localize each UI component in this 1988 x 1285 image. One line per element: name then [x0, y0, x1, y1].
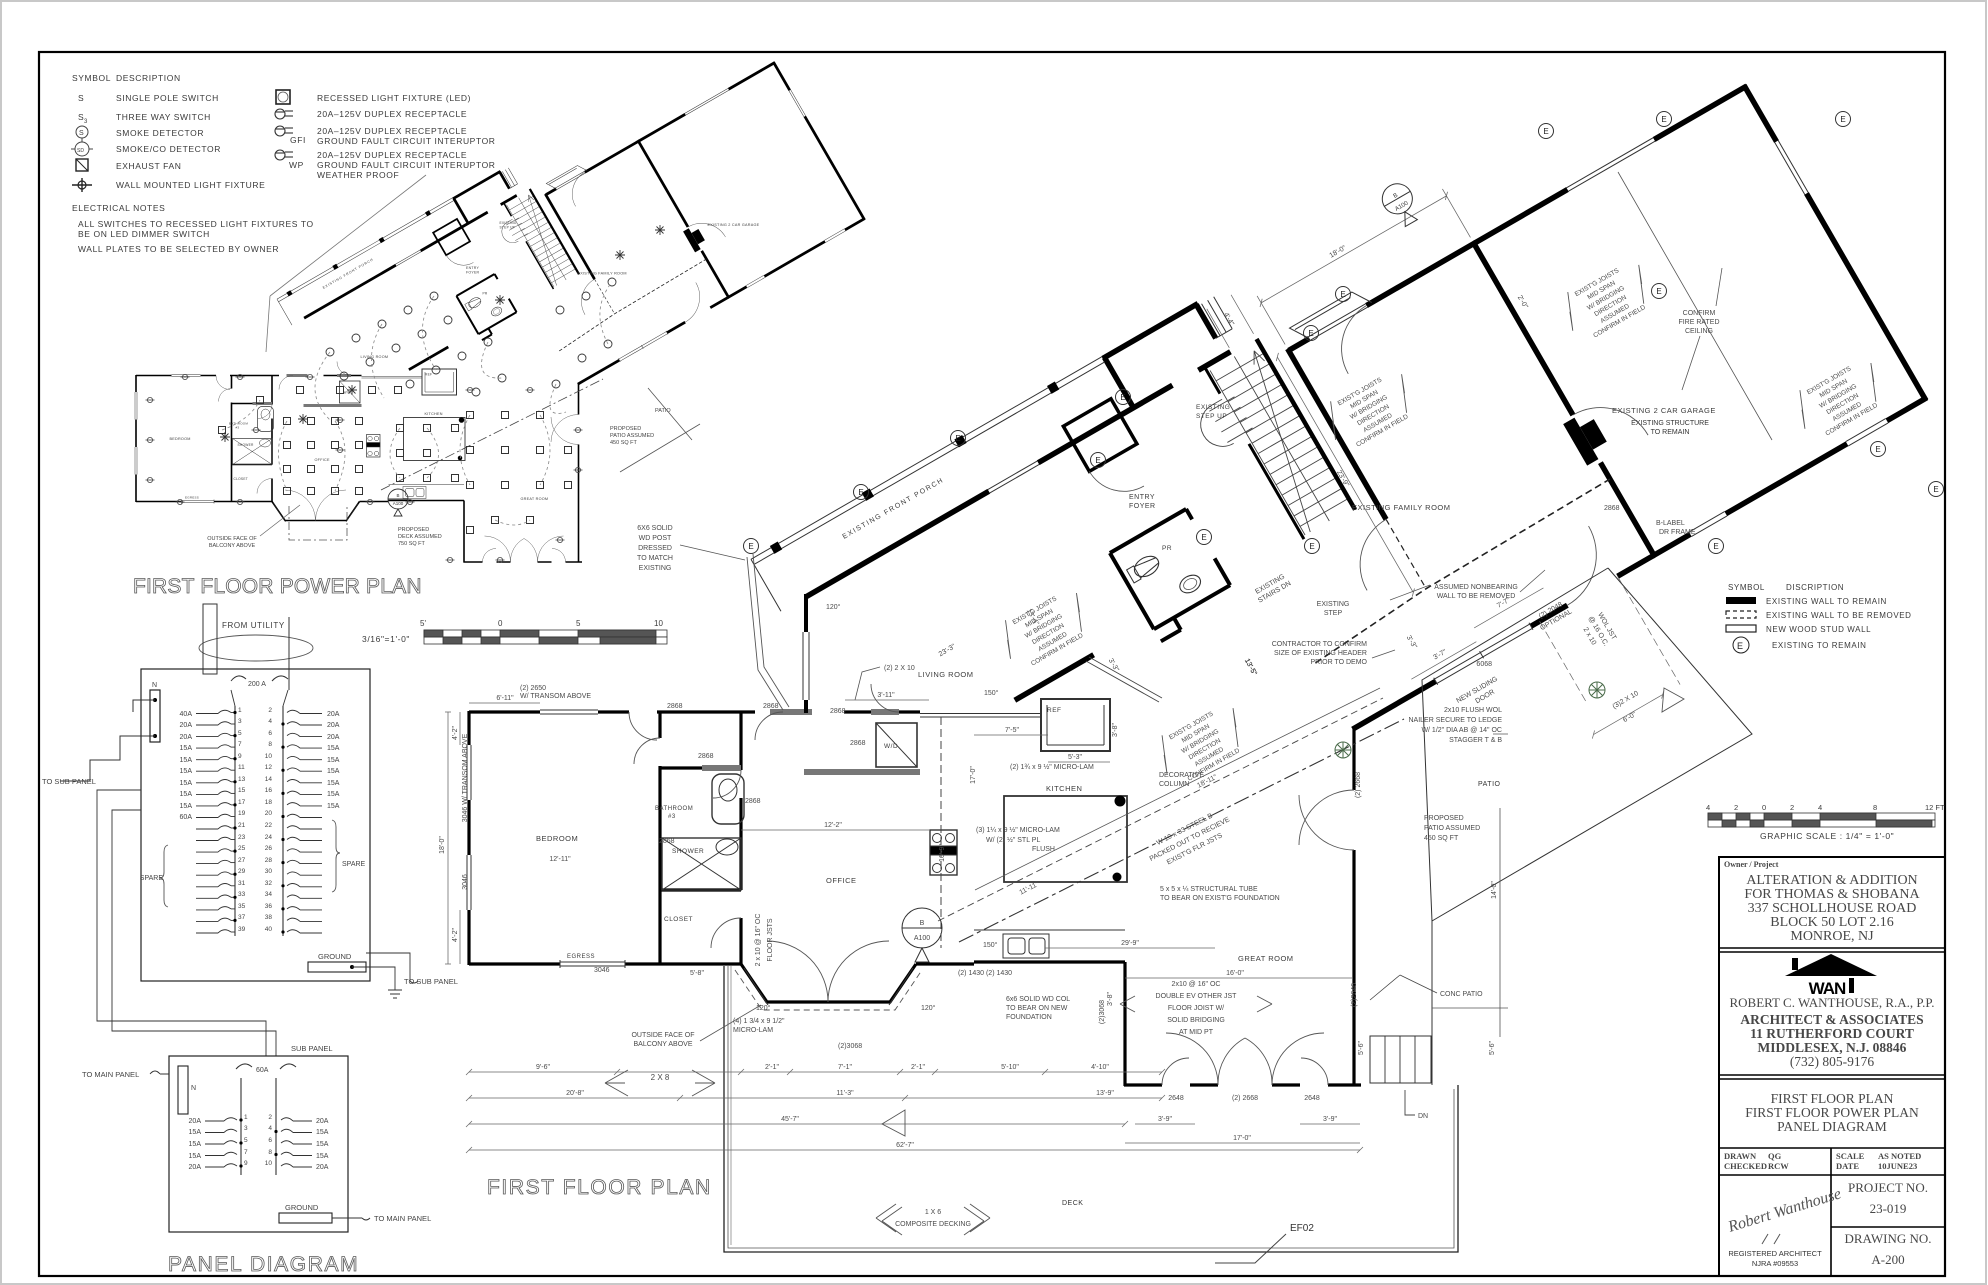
svg-text:E: E: [955, 434, 960, 443]
svg-text:GROUND: GROUND: [318, 952, 352, 961]
svg-text:39: 39: [238, 926, 246, 933]
svg-text:FLUSH: FLUSH: [1032, 846, 1055, 853]
svg-text:3046: 3046: [594, 967, 610, 974]
svg-text:3'-9": 3'-9": [1323, 1116, 1337, 1123]
svg-text:TO MAIN PANEL: TO MAIN PANEL: [374, 1214, 431, 1223]
svg-text:W/ 1/2" DIA AB @ 14" OC: W/ 1/2" DIA AB @ 14" OC: [1421, 727, 1502, 734]
svg-text:TO BEAR ON EXIST'G FOUNDATION: TO BEAR ON EXIST'G FOUNDATION: [1160, 895, 1280, 902]
svg-text:E: E: [858, 488, 863, 497]
svg-text:DR FRAME: DR FRAME: [1659, 529, 1696, 536]
svg-text:5'-8": 5'-8": [690, 970, 704, 977]
svg-text:TO SUB PANEL: TO SUB PANEL: [404, 977, 458, 986]
svg-text:7: 7: [238, 741, 242, 748]
svg-text:21: 21: [238, 822, 246, 829]
svg-text:7'-1": 7'-1": [838, 1064, 852, 1071]
svg-text:WD POST: WD POST: [639, 535, 672, 542]
svg-text:15A: 15A: [316, 1153, 329, 1160]
svg-text:20A: 20A: [316, 1164, 329, 1171]
svg-text:TO SUB PANEL: TO SUB PANEL: [42, 777, 96, 786]
svg-text:SINGLE POLE SWITCH: SINGLE POLE SWITCH: [116, 93, 219, 103]
svg-text:SUB PANEL: SUB PANEL: [291, 1044, 333, 1053]
svg-text:15A: 15A: [327, 757, 340, 764]
svg-text:2648: 2648: [1304, 1095, 1320, 1102]
svg-text:MONROE, NJ: MONROE, NJ: [1790, 929, 1874, 944]
svg-text:MIDDLESEX, N.J. 08846: MIDDLESEX, N.J. 08846: [1758, 1040, 1907, 1055]
svg-text:3'-8": 3'-8": [1107, 992, 1114, 1006]
svg-text:EXISTING TO REMAIN: EXISTING TO REMAIN: [1772, 641, 1867, 650]
svg-text:E: E: [1840, 115, 1845, 124]
svg-text:WALL PLATES TO BE SELECTED BY: WALL PLATES TO BE SELECTED BY OWNER: [78, 244, 279, 254]
svg-text:EXHAUST FAN: EXHAUST FAN: [116, 161, 182, 171]
svg-text:(2) 2650: (2) 2650: [520, 685, 546, 692]
svg-text:BLOCK 50 LOT 2.16: BLOCK 50 LOT 2.16: [1770, 915, 1893, 930]
svg-text:B-LABEL: B-LABEL: [1656, 520, 1685, 527]
svg-text:S: S: [79, 130, 84, 137]
svg-text:17'-0": 17'-0": [1233, 1135, 1251, 1142]
svg-text:B: B: [920, 920, 925, 927]
svg-text:12 FT: 12 FT: [1925, 803, 1945, 812]
svg-text:2: 2: [268, 1114, 272, 1121]
svg-text:TO MATCH: TO MATCH: [637, 555, 673, 562]
svg-text:20A–125V DUPLEX RECEPTACLE: 20A–125V DUPLEX RECEPTACLE: [317, 150, 467, 160]
svg-text:10: 10: [654, 619, 663, 628]
svg-text:SD: SD: [77, 148, 84, 154]
svg-text:24: 24: [265, 834, 273, 841]
svg-text:TO MAIN PANEL: TO MAIN PANEL: [82, 1070, 139, 1079]
svg-text:26: 26: [265, 845, 273, 852]
svg-text:DATE: DATE: [1836, 1161, 1859, 1171]
svg-text:DOUBLE EV OTHER JST: DOUBLE EV OTHER JST: [1156, 993, 1238, 1000]
svg-text:ELECTRICAL NOTES: ELECTRICAL NOTES: [72, 203, 165, 213]
svg-text:NAILER SECURE TO LEDGE: NAILER SECURE TO LEDGE: [1409, 717, 1503, 724]
svg-text:0: 0: [498, 619, 503, 628]
svg-text:CONC PATIO: CONC PATIO: [1440, 991, 1483, 998]
svg-text:0: 0: [1762, 803, 1766, 812]
svg-text:5'-6": 5'-6": [1489, 1041, 1496, 1055]
svg-text:E: E: [1656, 287, 1661, 296]
svg-text:(2) 2668: (2) 2668: [1355, 772, 1362, 798]
svg-text:PANEL DIAGRAM: PANEL DIAGRAM: [168, 1253, 359, 1276]
svg-text:3046: 3046: [462, 874, 469, 890]
svg-text:12: 12: [265, 764, 273, 771]
svg-text:REGISTERED ARCHITECT: REGISTERED ARCHITECT: [1728, 1249, 1822, 1258]
svg-text:CONTRACTOR TO CONFIRM: CONTRACTOR TO CONFIRM: [1272, 641, 1367, 648]
svg-text:15A: 15A: [180, 780, 193, 787]
svg-text:15A: 15A: [180, 768, 193, 775]
svg-text:DRAWING NO.: DRAWING NO.: [1844, 1231, 1931, 1246]
svg-text:5: 5: [238, 730, 242, 737]
svg-text:E: E: [1713, 542, 1718, 551]
svg-text:15A: 15A: [180, 791, 193, 798]
svg-text:6X6 SOLID: 6X6 SOLID: [637, 525, 672, 532]
svg-text:TO BEAR ON NEW: TO BEAR ON NEW: [1006, 1005, 1068, 1012]
svg-text:20A: 20A: [189, 1164, 202, 1171]
svg-text:(732) 805-9176: (732) 805-9176: [1790, 1054, 1875, 1069]
svg-text:EXISTING: EXISTING: [1317, 601, 1350, 608]
svg-text:WALL MOUNTED LIGHT FIXTURE: WALL MOUNTED LIGHT FIXTURE: [116, 180, 265, 190]
svg-text:15: 15: [238, 787, 246, 794]
svg-text:3'-8": 3'-8": [1112, 723, 1119, 737]
svg-text:FIRST FLOOR POWER PLAN: FIRST FLOOR POWER PLAN: [1745, 1105, 1919, 1120]
svg-text:17: 17: [238, 799, 246, 806]
svg-text:PANEL DIAGRAM: PANEL DIAGRAM: [1777, 1119, 1887, 1134]
svg-text:ROBERT C. WANTHOUSE, R.A., P.P: ROBERT C. WANTHOUSE, R.A., P.P.: [1730, 995, 1935, 1010]
svg-text:SIZE OF EXISTING HEADER: SIZE OF EXISTING HEADER: [1274, 650, 1367, 657]
svg-text:NJRA #09553: NJRA #09553: [1752, 1259, 1798, 1268]
svg-text:9'-6": 9'-6": [536, 1064, 550, 1071]
svg-text:15A: 15A: [180, 803, 193, 810]
svg-text:E: E: [1661, 115, 1666, 124]
svg-text:2868: 2868: [698, 753, 714, 760]
svg-text:6'-11": 6'-11": [496, 695, 514, 702]
svg-text:20A: 20A: [180, 734, 193, 741]
svg-text:120°: 120°: [826, 603, 841, 611]
svg-text:SYMBOL: SYMBOL: [1728, 583, 1765, 592]
svg-text:PROPOSED: PROPOSED: [610, 426, 641, 432]
svg-text:QG: QG: [1768, 1151, 1782, 1161]
svg-text:3/16"=1'-0": 3/16"=1'-0": [362, 634, 410, 644]
svg-text:W/ TRANSOM ABOVE: W/ TRANSOM ABOVE: [520, 693, 591, 700]
svg-text:PROPOSED: PROPOSED: [1424, 815, 1464, 822]
svg-text:A100: A100: [914, 935, 930, 942]
svg-text:5 x 5 x ¼ STRUCTURAL TUBE: 5 x 5 x ¼ STRUCTURAL TUBE: [1160, 886, 1258, 893]
svg-text:2868: 2868: [850, 740, 866, 747]
svg-text:37: 37: [238, 914, 246, 921]
svg-text:FLOOR JSTS: FLOOR JSTS: [767, 918, 774, 962]
svg-text:NEW WOOD STUD WALL: NEW WOOD STUD WALL: [1766, 625, 1871, 634]
svg-text:7: 7: [244, 1149, 248, 1156]
svg-text:(2) 1¾ x 9 ½" MICRO-LAM: (2) 1¾ x 9 ½" MICRO-LAM: [1010, 763, 1094, 771]
svg-text:E: E: [1340, 290, 1345, 299]
svg-text:32: 32: [265, 880, 273, 887]
svg-text:E: E: [1201, 533, 1206, 542]
svg-text:4: 4: [1818, 803, 1822, 812]
svg-text:20A: 20A: [316, 1118, 329, 1125]
svg-text:15A: 15A: [327, 780, 340, 787]
svg-text:EXISTING WALL TO REMAIN: EXISTING WALL TO REMAIN: [1766, 597, 1887, 606]
svg-text:9: 9: [238, 753, 242, 760]
svg-text:PROJECT NO.: PROJECT NO.: [1848, 1180, 1928, 1195]
svg-text:15A: 15A: [316, 1129, 329, 1136]
svg-text:EXISTING STRUCTURE: EXISTING STRUCTURE: [1631, 420, 1709, 427]
svg-text:29: 29: [238, 868, 246, 875]
svg-text:ASSUMED NONBEARING: ASSUMED NONBEARING: [1434, 584, 1518, 591]
svg-text:20A–125V DUPLEX RECEPTACLE: 20A–125V DUPLEX RECEPTACLE: [317, 126, 467, 136]
svg-text:13: 13: [238, 776, 246, 783]
svg-text:60A: 60A: [256, 1067, 269, 1074]
svg-text:60A: 60A: [180, 814, 193, 821]
svg-text:SYMBOL: SYMBOL: [72, 73, 111, 83]
svg-text:4'-10": 4'-10": [1091, 1064, 1109, 1071]
svg-text:120°: 120°: [756, 1004, 771, 1012]
svg-text:45'-7": 45'-7": [781, 1116, 799, 1123]
svg-text:SMOKE/CO DETECTOR: SMOKE/CO DETECTOR: [116, 144, 221, 154]
svg-text:DESCRIPTION: DESCRIPTION: [116, 73, 181, 83]
svg-text:20A: 20A: [180, 722, 193, 729]
svg-text:15A: 15A: [327, 803, 340, 810]
svg-text:10: 10: [265, 753, 273, 760]
svg-text:5: 5: [576, 619, 581, 628]
svg-text:9: 9: [244, 1160, 248, 1167]
svg-text:WEATHER PROOF: WEATHER PROOF: [317, 170, 399, 180]
svg-text:PROPOSED: PROPOSED: [398, 527, 429, 533]
svg-text:E: E: [1875, 445, 1880, 454]
svg-text:DISCRIPTION: DISCRIPTION: [1786, 583, 1844, 592]
svg-text:E: E: [1933, 485, 1938, 494]
svg-text:15A: 15A: [316, 1141, 329, 1148]
svg-text:14: 14: [265, 776, 273, 783]
svg-text:2: 2: [1734, 803, 1738, 812]
svg-text:SPARE: SPARE: [342, 861, 366, 868]
svg-text:2'-1": 2'-1": [911, 1064, 925, 1071]
svg-text:EF02: EF02: [1290, 1223, 1314, 1234]
svg-text:20A: 20A: [327, 722, 340, 729]
svg-text:BE ON LED DIMMER SWITCH: BE ON LED DIMMER SWITCH: [78, 229, 210, 239]
svg-text:15A: 15A: [327, 791, 340, 798]
svg-text:450 SQ FT: 450 SQ FT: [1424, 835, 1459, 842]
svg-text:16'-9": 16'-9": [939, 844, 946, 862]
svg-text:2 X 8: 2 X 8: [651, 1073, 670, 1082]
svg-text:STEP: STEP: [1324, 610, 1343, 617]
svg-text:150°: 150°: [984, 689, 999, 697]
svg-text:OUTSIDE FACE OF: OUTSIDE FACE OF: [631, 1032, 694, 1039]
svg-text:27: 27: [238, 857, 246, 864]
svg-text:7'-5": 7'-5": [1005, 727, 1019, 734]
svg-text:E: E: [1737, 641, 1743, 651]
svg-text:15A: 15A: [189, 1141, 202, 1148]
svg-text:35: 35: [238, 903, 246, 910]
svg-text:750 SQ FT: 750 SQ FT: [398, 541, 426, 547]
svg-text:A100: A100: [393, 501, 404, 506]
svg-text:18: 18: [265, 799, 273, 806]
svg-text:2868: 2868: [763, 703, 779, 710]
svg-text:2: 2: [1790, 803, 1794, 812]
svg-text:12'-2": 12'-2": [824, 822, 842, 829]
svg-text:18'-0": 18'-0": [439, 836, 446, 854]
svg-text:6068: 6068: [1476, 661, 1492, 668]
svg-text:337 SCHOLLHOUSE ROAD: 337 SCHOLLHOUSE ROAD: [1748, 901, 1917, 916]
svg-text:15A: 15A: [327, 745, 340, 752]
svg-text:DECK: DECK: [1062, 1200, 1083, 1207]
svg-text:6: 6: [268, 730, 272, 737]
svg-text:2x10 @ 16" OC: 2x10 @ 16" OC: [1172, 981, 1221, 988]
svg-text:E: E: [748, 542, 753, 551]
svg-text:PATIO ASSUMED: PATIO ASSUMED: [1424, 825, 1480, 832]
svg-text:10JUNE23: 10JUNE23: [1878, 1161, 1917, 1171]
svg-text:SCALE: SCALE: [1836, 1151, 1865, 1161]
svg-text:20A: 20A: [327, 734, 340, 741]
svg-text:15A: 15A: [180, 745, 193, 752]
svg-text:CEILING: CEILING: [1685, 328, 1713, 335]
svg-text:SMOKE DETECTOR: SMOKE DETECTOR: [116, 128, 204, 138]
svg-text:(2)3068: (2)3068: [838, 1043, 862, 1050]
svg-text:29'-9": 29'-9": [1121, 940, 1139, 947]
svg-text:E: E: [1543, 127, 1548, 136]
svg-text:450 SQ FT: 450 SQ FT: [610, 440, 638, 446]
svg-text:E: E: [1308, 329, 1313, 338]
svg-text:E: E: [1095, 456, 1100, 465]
svg-text:2x10 FLUSH WOL: 2x10 FLUSH WOL: [1444, 707, 1502, 714]
svg-text:4: 4: [1706, 803, 1710, 812]
svg-text:FOR THOMAS & SHOBANA: FOR THOMAS & SHOBANA: [1744, 887, 1920, 902]
svg-text:20A: 20A: [189, 1118, 202, 1125]
svg-text:GROUND: GROUND: [285, 1203, 319, 1212]
svg-text:4: 4: [268, 718, 272, 725]
svg-text:(2) 2668: (2) 2668: [1232, 1095, 1258, 1102]
svg-text:AT MID PT: AT MID PT: [1179, 1029, 1214, 1036]
svg-text:DRESSED: DRESSED: [638, 545, 672, 552]
svg-text:6x6 SOLID WD COL: 6x6 SOLID WD COL: [1006, 996, 1070, 1003]
svg-text:25: 25: [238, 845, 246, 852]
svg-text:4'-2": 4'-2": [452, 726, 459, 740]
svg-text:2 x 10 @ 16" OC: 2 x 10 @ 16" OC: [755, 914, 762, 967]
svg-text:E: E: [1120, 393, 1125, 402]
svg-text:BALCONY ABOVE: BALCONY ABOVE: [209, 543, 256, 549]
svg-text:FROM UTILITY: FROM UTILITY: [222, 621, 285, 630]
svg-text:2868: 2868: [659, 838, 675, 845]
svg-text:DRAWN: DRAWN: [1724, 1151, 1757, 1161]
svg-text:38: 38: [265, 914, 273, 921]
svg-text:3: 3: [244, 1125, 248, 1132]
svg-text:20'-8": 20'-8": [566, 1090, 584, 1097]
svg-text:20A: 20A: [327, 711, 340, 718]
svg-text:3'-11": 3'-11": [877, 692, 895, 699]
svg-text:COMPOSITE DECKING: COMPOSITE DECKING: [895, 1221, 971, 1228]
svg-text:31: 31: [238, 880, 246, 887]
svg-text:5'-3": 5'-3": [1068, 754, 1082, 761]
svg-text:1: 1: [238, 707, 242, 714]
svg-text:16'-0": 16'-0": [1226, 970, 1244, 977]
svg-text:SPARE: SPARE: [140, 875, 164, 882]
svg-text:W/ (2) ½" STL PL: W/ (2) ½" STL PL: [986, 836, 1040, 844]
svg-text:FIRST FLOOR PLAN: FIRST FLOOR PLAN: [1771, 1091, 1894, 1106]
svg-text:RECESSED LIGHT FIXTURE (LED): RECESSED LIGHT FIXTURE (LED): [317, 93, 471, 103]
svg-text:4'-2": 4'-2": [452, 928, 459, 942]
svg-text:ARCHITECT & ASSOCIATES: ARCHITECT & ASSOCIATES: [1740, 1012, 1923, 1027]
svg-text:4: 4: [268, 1125, 272, 1132]
svg-text:(2)3068: (2)3068: [1099, 1000, 1106, 1024]
svg-text:2648: 2648: [1168, 1095, 1184, 1102]
svg-text:62'-7": 62'-7": [896, 1142, 914, 1149]
svg-text:34: 34: [265, 891, 273, 898]
svg-text:2: 2: [268, 707, 272, 714]
svg-text:E: E: [1309, 542, 1314, 551]
svg-text:WP: WP: [289, 160, 304, 170]
svg-text:17'-0": 17'-0": [970, 766, 977, 784]
svg-text:150°: 150°: [983, 941, 998, 949]
svg-text:FIRE RATED: FIRE RATED: [1678, 319, 1719, 326]
svg-text:15A: 15A: [327, 768, 340, 775]
svg-text:FIRST FLOOR POWER PLAN: FIRST FLOOR POWER PLAN: [133, 575, 422, 598]
svg-text:DECK ASSUMED: DECK ASSUMED: [398, 534, 442, 540]
svg-text:20: 20: [265, 810, 273, 817]
svg-text:8: 8: [268, 741, 272, 748]
svg-text:1 X 6: 1 X 6: [925, 1209, 941, 1216]
svg-text:PRIOR TO DEMO: PRIOR TO DEMO: [1310, 659, 1367, 666]
svg-text:N: N: [191, 1085, 196, 1092]
svg-text:12'-11": 12'-11": [549, 856, 571, 863]
svg-text:8: 8: [268, 1149, 272, 1156]
svg-text:2868: 2868: [1604, 505, 1620, 512]
svg-text:RCW: RCW: [1768, 1161, 1789, 1171]
svg-text:15A: 15A: [180, 757, 193, 764]
svg-text:3: 3: [238, 718, 242, 725]
svg-text:PATIO ASSUMED: PATIO ASSUMED: [610, 433, 654, 439]
svg-text:3046 W/ TRANSOM ABOVE: 3046 W/ TRANSOM ABOVE: [462, 733, 469, 822]
svg-text:20A–125V DUPLEX RECEPTACLE: 20A–125V DUPLEX RECEPTACLE: [317, 109, 467, 119]
svg-text:11: 11: [238, 764, 245, 771]
svg-text:A-200: A-200: [1871, 1252, 1904, 1267]
svg-text:ALL SWITCHES TO RECESSED LIGHT: ALL SWITCHES TO RECESSED LIGHT FIXTURES …: [78, 219, 314, 229]
svg-text:GRAPHIC SCALE : 1/4" = 1'-0": GRAPHIC SCALE : 1/4" = 1'-0": [1760, 831, 1894, 841]
svg-text:200 A: 200 A: [248, 681, 266, 688]
svg-text:15A: 15A: [189, 1153, 202, 1160]
svg-text:(2) 1430 (2) 1430: (2) 1430 (2) 1430: [958, 970, 1012, 977]
svg-text:(4) 1 3/4 x 9 1/2": (4) 1 3/4 x 9 1/2": [733, 1018, 785, 1025]
svg-text:ALTERATION & ADDITION: ALTERATION & ADDITION: [1746, 873, 1917, 888]
svg-text:FOUNDATION: FOUNDATION: [1006, 1014, 1052, 1021]
svg-text:(2)2646: (2)2646: [1351, 983, 1358, 1007]
svg-text:DN: DN: [1418, 1113, 1428, 1120]
svg-text:23: 23: [238, 834, 246, 841]
svg-text:2868: 2868: [667, 703, 683, 710]
svg-text:11 RUTHERFORD COURT: 11 RUTHERFORD COURT: [1750, 1026, 1914, 1041]
svg-text:28: 28: [265, 857, 273, 864]
svg-text:120°: 120°: [921, 1004, 936, 1012]
svg-text:PATIO: PATIO: [1478, 781, 1501, 788]
svg-text:SOLID BRIDGING: SOLID BRIDGING: [1167, 1017, 1225, 1024]
svg-text:36: 36: [265, 903, 273, 910]
svg-text:CHECKED: CHECKED: [1724, 1161, 1767, 1171]
svg-text:EXISTING: EXISTING: [639, 565, 672, 572]
svg-text:22: 22: [265, 822, 273, 829]
svg-text:MICRO-LAM: MICRO-LAM: [733, 1027, 773, 1034]
svg-text:2868: 2868: [830, 708, 846, 715]
svg-text:(2) 2 X 10: (2) 2 X 10: [884, 665, 915, 672]
svg-text:5': 5': [420, 619, 426, 628]
svg-text:THREE WAY SWITCH: THREE WAY SWITCH: [116, 112, 211, 122]
svg-text:15A: 15A: [189, 1129, 202, 1136]
svg-text:33: 33: [238, 891, 246, 898]
svg-text:23-019: 23-019: [1870, 1201, 1907, 1216]
svg-text:1: 1: [244, 1114, 248, 1121]
svg-text:(3) 1¼ x 9 ½" MICRO-LAM: (3) 1¼ x 9 ½" MICRO-LAM: [976, 826, 1060, 834]
svg-text:BALCONY ABOVE: BALCONY ABOVE: [633, 1041, 692, 1048]
svg-text:6: 6: [268, 1137, 272, 1144]
svg-text:AS NOTED: AS NOTED: [1878, 1151, 1921, 1161]
svg-text:8: 8: [1873, 803, 1877, 812]
svg-text:EXISTING WALL TO BE REMOVED: EXISTING WALL TO BE REMOVED: [1766, 611, 1912, 620]
svg-text:FIRST FLOOR PLAN: FIRST FLOOR PLAN: [487, 1176, 712, 1199]
svg-text:STAGGER T & B: STAGGER T & B: [1449, 737, 1502, 744]
svg-text:B: B: [396, 493, 399, 498]
svg-text:Owner / Project: Owner / Project: [1724, 860, 1779, 869]
svg-text:5: 5: [244, 1137, 248, 1144]
svg-text:TO REMAIN: TO REMAIN: [1651, 429, 1690, 436]
svg-text:GROUND FAULT CIRCUIT INTERUPTO: GROUND FAULT CIRCUIT INTERUPTOR: [317, 160, 496, 170]
svg-text:19: 19: [238, 810, 246, 817]
svg-text:N: N: [152, 682, 157, 689]
svg-text:11'-3": 11'-3": [836, 1090, 854, 1097]
svg-text:GFI: GFI: [290, 135, 306, 145]
svg-text:14'-0": 14'-0": [1491, 881, 1498, 899]
svg-text:40: 40: [265, 926, 273, 933]
svg-text:S: S: [78, 93, 84, 103]
svg-text:2868: 2868: [745, 798, 761, 805]
svg-text:OUTSIDE FACE OF: OUTSIDE FACE OF: [207, 536, 257, 542]
svg-text:2'-1": 2'-1": [765, 1064, 779, 1071]
svg-text:5'-6": 5'-6": [1358, 1041, 1365, 1055]
